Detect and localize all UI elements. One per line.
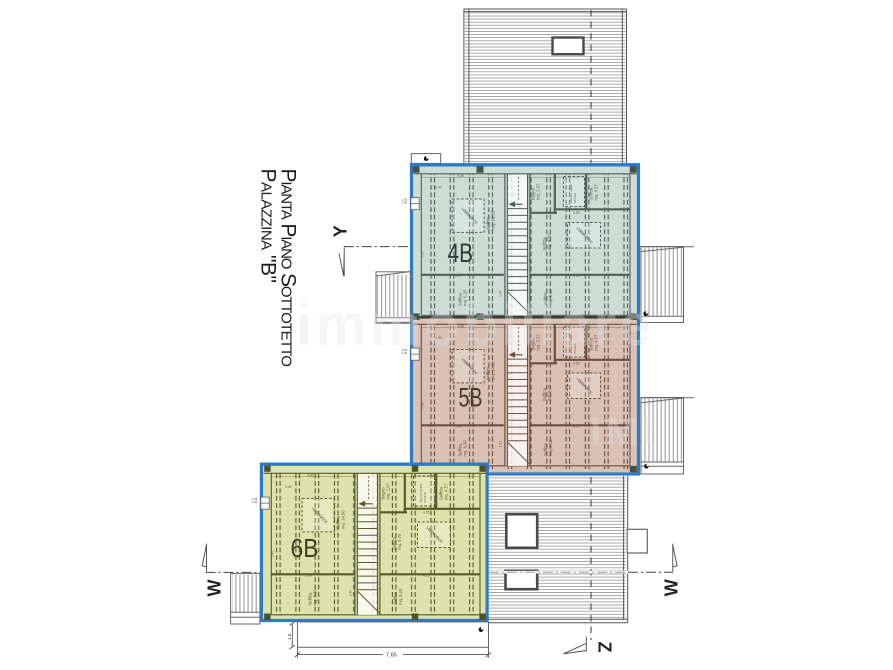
svg-text:IMI: IMI bbox=[590, 410, 658, 454]
svg-text:Palazzina "B": Palazzina "B" bbox=[257, 169, 280, 283]
svg-text:6B: 6B bbox=[291, 533, 319, 563]
svg-text:4B: 4B bbox=[448, 238, 474, 268]
svg-text:1.0: 1.0 bbox=[287, 633, 292, 640]
svg-text:7.65: 7.65 bbox=[386, 653, 397, 659]
svg-text:5B: 5B bbox=[459, 383, 483, 413]
svg-text:W: W bbox=[662, 579, 682, 596]
svg-text:Z: Z bbox=[595, 642, 615, 653]
svg-text:Y: Y bbox=[331, 225, 351, 237]
svg-text:W: W bbox=[205, 580, 225, 597]
svg-text:immobiliare: immobiliare bbox=[296, 293, 655, 358]
